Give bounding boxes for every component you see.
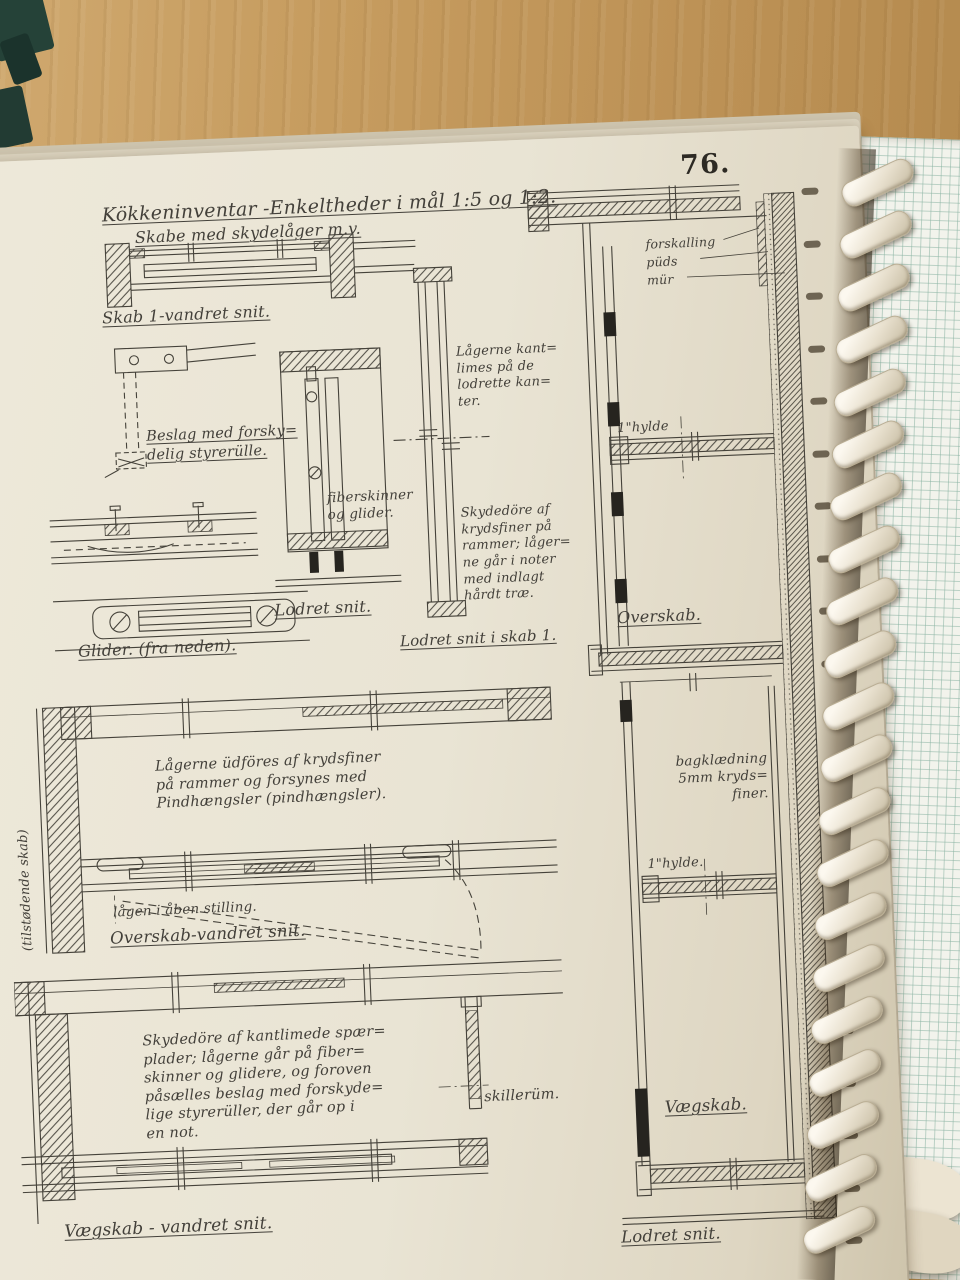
spiral-loop	[816, 731, 896, 787]
caption-beslag: Beslag med forsky= delig styrerülle.	[146, 421, 299, 464]
spiral-loop	[828, 417, 908, 473]
spiral-loop	[824, 521, 904, 577]
spiral-loop	[834, 260, 914, 316]
note-hylde-bottom: 1"hylde.	[647, 855, 704, 874]
caption-vaegskab: Vægskab.	[664, 1093, 747, 1118]
spiral-loop	[813, 836, 893, 892]
spiral-loop	[830, 364, 910, 420]
spiral-loop	[807, 993, 887, 1049]
note-fiberskinner: fiberskinner og glider.	[327, 487, 414, 525]
spiral-loop	[803, 1097, 883, 1153]
page-number: 76.	[680, 147, 731, 184]
photo-scene: 76. Kökkeninventar -Enkeltheder i mål 1:…	[0, 0, 960, 1280]
spiral-loop	[809, 940, 889, 996]
spiral-loop	[815, 783, 895, 839]
caption-lodret-snit: Lodret snit.	[274, 597, 371, 621]
note-skillerum: skillerüm.	[484, 1085, 560, 1107]
note-bagklaedning: bagklædning 5mm kryds= finer.	[653, 750, 769, 807]
note-skydedore-kantlimede: Skydedöre af kantlimede spær= plader; lå…	[142, 1022, 390, 1143]
spiral-loop	[836, 207, 916, 263]
spiral-loop	[801, 1150, 881, 1206]
note-hylde-top: 1"hylde	[617, 419, 669, 438]
spiral-loop	[820, 626, 900, 682]
caption-lodret-snit-bottom: Lodret snit.	[621, 1222, 721, 1247]
spiral-loop	[818, 678, 898, 734]
note-forskalling-puds-mur: forskalling püds mür	[645, 233, 717, 290]
caption-overskab: Overskab.	[617, 605, 702, 629]
note-lagerne-udfores: Lågerne üdföres af krydsfiner på rammer …	[155, 748, 387, 813]
note-skydedore-skab1: Skydedöre af krydsfiner på rammer; låger…	[460, 501, 573, 605]
spiral-loop	[799, 1202, 879, 1258]
spiral-loop	[822, 574, 902, 630]
note-lagerne-kantlimes: Lågerne kant= limes på de lodrette kan= …	[456, 341, 560, 412]
spiral-loop	[805, 1045, 885, 1101]
spiral-loop	[832, 312, 912, 368]
spiral-loop	[826, 469, 906, 525]
spiral-loop	[811, 888, 891, 944]
